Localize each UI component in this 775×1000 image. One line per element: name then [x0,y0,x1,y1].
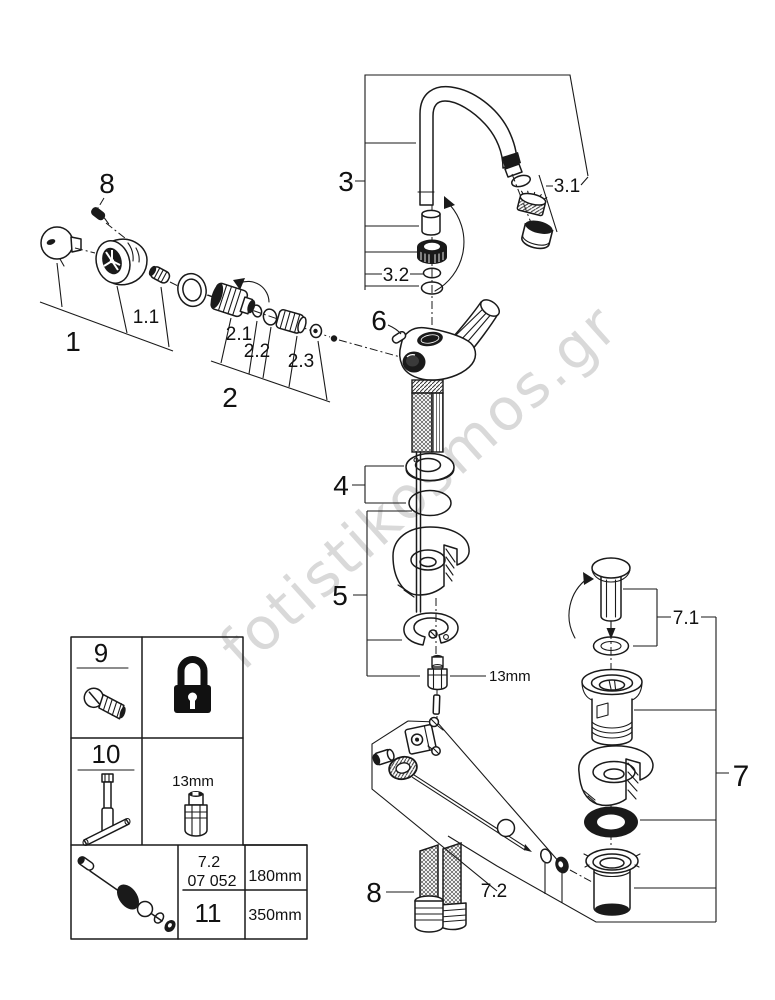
callout-3-1: 3.1 [554,176,580,197]
hose-left [420,845,438,903]
socket-13mm-icon [185,791,207,836]
callout-5: 5 [332,580,348,611]
link-pin [433,695,440,714]
set-ball [331,335,337,341]
hose-left-nut [415,896,443,932]
legend-rod-ref: 7.2 [198,854,220,871]
callout-3: 3 [338,166,354,197]
faucet-exploded-diagram: fotistikosmos.gr 8 [0,0,775,1000]
callout-6: 6 [371,305,387,336]
callout-8-bottom: 8 [366,877,382,908]
callout-7-1: 7.1 [673,608,699,629]
drain-gasket [584,807,638,838]
legend-item-9: 9 [94,638,108,668]
hose-right-nut [440,903,466,930]
callout-2-3: 2.3 [288,351,314,372]
legend-item-11: 11 [195,898,222,928]
legend-rod-code: 07 052 [188,873,237,890]
threaded-shank [432,393,443,452]
callout-8-top: 8 [99,168,115,199]
braided-shank [412,393,432,452]
spout-sleeve [422,210,440,235]
legend-item-10: 10 [92,739,121,769]
legend-length-long: 350mm [248,907,301,924]
callout-3-2: 3.2 [383,265,409,286]
callout-4: 4 [333,470,349,501]
legend-length-short: 180mm [248,868,301,885]
nut-size-label: 13mm [489,668,531,685]
hose-right [443,843,461,908]
seal-washer [311,325,322,338]
callout-2-2: 2.2 [244,341,270,362]
callout-1-1: 1.1 [133,307,159,328]
callout-7-2: 7.2 [481,881,507,902]
callout-1: 1 [65,326,81,357]
callout-2: 2 [222,382,238,413]
escutcheon-ring [406,454,454,482]
exploded-parts-diagram-page: fotistikosmos.gr 8 [0,0,775,1000]
legend-socket-size: 13mm [172,773,214,790]
callout-7: 7 [733,760,750,793]
spout-cap-nut [417,240,447,265]
rod-ball [498,820,515,837]
